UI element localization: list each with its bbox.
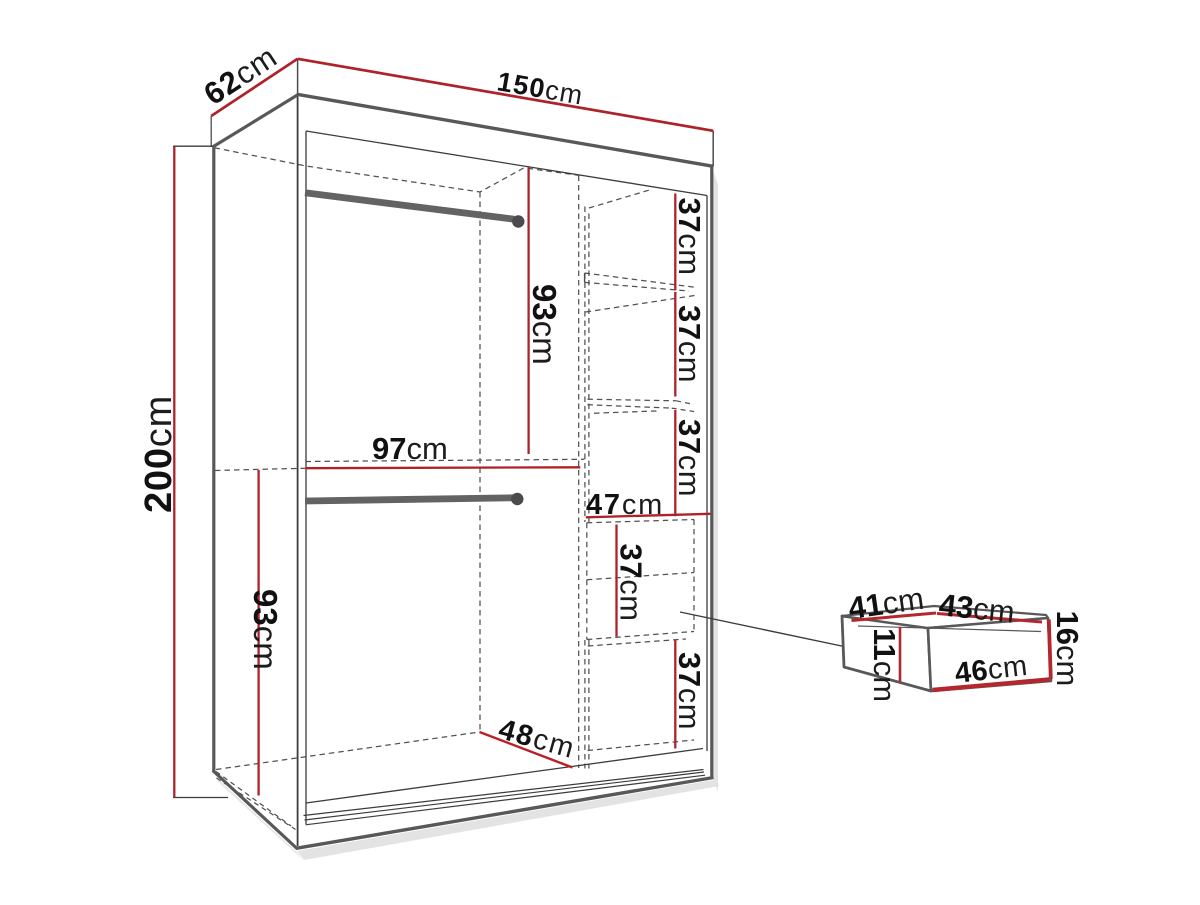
svg-text:37cm: 37cm xyxy=(672,652,707,730)
svg-text:37cm: 37cm xyxy=(672,305,707,383)
svg-text:200cm: 200cm xyxy=(138,395,180,513)
svg-text:97cm: 97cm xyxy=(372,431,448,466)
svg-text:93cm: 93cm xyxy=(247,589,284,670)
svg-text:37cm: 37cm xyxy=(672,419,707,497)
svg-text:16cm: 16cm xyxy=(1050,611,1085,687)
svg-text:93cm: 93cm xyxy=(526,284,563,365)
svg-text:37cm: 37cm xyxy=(614,544,649,622)
svg-text:47cm: 47cm xyxy=(586,489,664,521)
svg-text:37cm: 37cm xyxy=(672,198,707,276)
svg-text:11cm: 11cm xyxy=(867,628,902,702)
